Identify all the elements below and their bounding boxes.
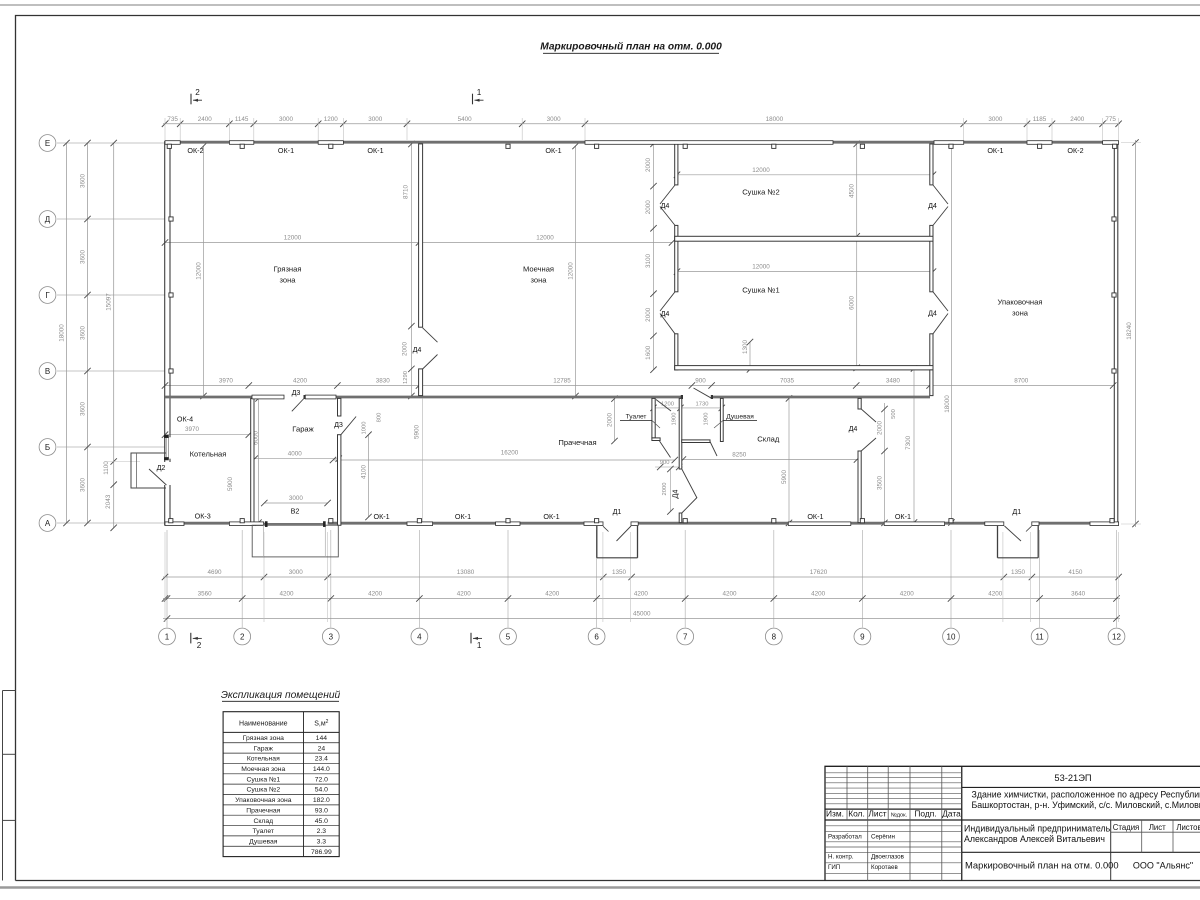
svg-text:3830: 3830 bbox=[376, 378, 391, 385]
svg-text:Д1: Д1 bbox=[613, 507, 622, 516]
svg-text:Упаковочная зона: Упаковочная зона bbox=[235, 797, 292, 804]
svg-text:5400: 5400 bbox=[458, 116, 473, 123]
svg-text:18000: 18000 bbox=[944, 395, 951, 413]
svg-text:3000: 3000 bbox=[368, 116, 383, 123]
svg-text:Д4: Д4 bbox=[661, 309, 670, 318]
svg-text:1: 1 bbox=[477, 88, 482, 97]
svg-text:ОК-1: ОК-1 bbox=[367, 146, 383, 155]
svg-text:7: 7 bbox=[683, 632, 688, 641]
svg-text:6: 6 bbox=[594, 632, 599, 641]
svg-text:Д4: Д4 bbox=[671, 490, 680, 499]
svg-text:5900: 5900 bbox=[414, 425, 421, 440]
svg-text:12000: 12000 bbox=[568, 262, 575, 280]
svg-text:Грязная: Грязная bbox=[274, 265, 302, 274]
svg-text:18240: 18240 bbox=[1126, 322, 1133, 340]
svg-text:6000: 6000 bbox=[849, 296, 856, 311]
svg-text:1300: 1300 bbox=[742, 340, 749, 355]
svg-text:4500: 4500 bbox=[849, 184, 856, 199]
svg-text:2400: 2400 bbox=[198, 116, 213, 123]
svg-text:Стадия: Стадия bbox=[1113, 823, 1140, 832]
svg-text:4: 4 bbox=[417, 632, 422, 641]
svg-text:Экспликация помещений: Экспликация помещений bbox=[221, 690, 341, 701]
svg-text:Кол.: Кол. bbox=[848, 809, 865, 819]
svg-text:ОК-4: ОК-4 bbox=[177, 415, 193, 424]
svg-text:12000: 12000 bbox=[536, 235, 554, 242]
svg-text:Гараж: Гараж bbox=[254, 745, 274, 752]
svg-text:7035: 7035 bbox=[780, 378, 795, 385]
svg-text:Е: Е bbox=[45, 139, 50, 148]
svg-text:Дата: Дата bbox=[942, 809, 961, 819]
svg-text:4200: 4200 bbox=[279, 591, 294, 598]
svg-text:ОК-1: ОК-1 bbox=[374, 512, 390, 521]
svg-text:3600: 3600 bbox=[80, 326, 87, 341]
svg-text:5900: 5900 bbox=[781, 470, 788, 485]
svg-text:12: 12 bbox=[1112, 632, 1121, 641]
svg-text:1730: 1730 bbox=[696, 402, 709, 408]
svg-text:Сушка №1: Сушка №1 bbox=[246, 776, 280, 783]
svg-text:4200: 4200 bbox=[634, 591, 649, 598]
svg-text:5900: 5900 bbox=[227, 477, 234, 492]
svg-text:735: 735 bbox=[167, 116, 178, 123]
svg-text:1185: 1185 bbox=[1033, 116, 1047, 123]
svg-text:зона: зона bbox=[530, 276, 547, 285]
svg-text:8250: 8250 bbox=[732, 452, 747, 459]
svg-text:72.0: 72.0 bbox=[315, 776, 328, 783]
svg-text:2: 2 bbox=[197, 641, 202, 650]
svg-text:93.0: 93.0 bbox=[315, 807, 328, 814]
svg-text:Д4: Д4 bbox=[661, 201, 670, 210]
svg-text:3480: 3480 bbox=[886, 378, 901, 385]
svg-text:3000: 3000 bbox=[289, 495, 304, 502]
svg-text:4150: 4150 bbox=[1068, 569, 1083, 576]
svg-text:9: 9 bbox=[860, 632, 865, 641]
svg-text:3970: 3970 bbox=[219, 378, 234, 385]
svg-text:900: 900 bbox=[695, 378, 706, 385]
svg-text:3600: 3600 bbox=[80, 174, 87, 189]
svg-text:53-21ЭП: 53-21ЭП bbox=[1054, 773, 1091, 783]
svg-text:2400: 2400 bbox=[1070, 116, 1085, 123]
svg-text:2000: 2000 bbox=[645, 200, 652, 215]
svg-text:24: 24 bbox=[318, 745, 326, 752]
svg-text:3000: 3000 bbox=[547, 116, 562, 123]
svg-text:3.3: 3.3 bbox=[317, 838, 327, 845]
svg-text:11: 11 bbox=[1035, 632, 1044, 641]
svg-text:2000: 2000 bbox=[607, 413, 614, 428]
svg-text:Моечная: Моечная bbox=[523, 265, 554, 274]
svg-text:Д: Д bbox=[45, 215, 51, 224]
svg-text:Д4: Д4 bbox=[928, 201, 937, 210]
svg-text:4200: 4200 bbox=[722, 591, 737, 598]
svg-text:4200: 4200 bbox=[368, 591, 383, 598]
svg-text:3600: 3600 bbox=[80, 478, 87, 493]
svg-text:Туалет: Туалет bbox=[253, 828, 275, 835]
svg-text:12785: 12785 bbox=[553, 378, 571, 385]
svg-text:2000: 2000 bbox=[402, 342, 409, 357]
svg-text:4200: 4200 bbox=[457, 591, 472, 598]
svg-text:8: 8 bbox=[772, 632, 777, 641]
svg-text:1100: 1100 bbox=[103, 461, 110, 475]
svg-text:ОК-3: ОК-3 bbox=[195, 512, 211, 521]
svg-text:8700: 8700 bbox=[1014, 378, 1029, 385]
svg-text:800: 800 bbox=[377, 413, 383, 423]
svg-text:3000: 3000 bbox=[988, 116, 1003, 123]
svg-text:Г: Г bbox=[45, 291, 50, 300]
svg-text:3: 3 bbox=[329, 632, 334, 641]
svg-text:ОК-2: ОК-2 bbox=[1067, 146, 1083, 155]
svg-text:1290: 1290 bbox=[403, 371, 409, 384]
svg-text:2043: 2043 bbox=[105, 494, 112, 509]
svg-text:5: 5 bbox=[506, 632, 511, 641]
svg-text:18000: 18000 bbox=[766, 116, 784, 123]
svg-text:Сушка №1: Сушка №1 bbox=[742, 286, 780, 295]
svg-text:144.0: 144.0 bbox=[313, 766, 330, 773]
svg-text:В2: В2 bbox=[291, 507, 300, 516]
svg-text:Д3: Д3 bbox=[292, 388, 301, 397]
svg-text:ОК-1: ОК-1 bbox=[455, 512, 471, 521]
svg-text:Двоеглазов: Двоеглазов bbox=[871, 853, 905, 860]
svg-text:ОК-1: ОК-1 bbox=[543, 512, 559, 521]
svg-text:144: 144 bbox=[316, 735, 328, 742]
svg-text:Листов: Листов bbox=[1176, 823, 1200, 832]
svg-text:2.3: 2.3 bbox=[317, 828, 327, 835]
svg-text:Д4: Д4 bbox=[928, 309, 937, 318]
svg-text:Маркировочный план на отм. 0.0: Маркировочный план на отм. 0.000 bbox=[965, 860, 1119, 871]
svg-text:45000: 45000 bbox=[633, 611, 651, 618]
svg-text:2000: 2000 bbox=[645, 307, 652, 322]
svg-text:54.0: 54.0 bbox=[315, 787, 328, 794]
svg-text:182.0: 182.0 bbox=[313, 797, 330, 804]
svg-text:Д1: Д1 bbox=[1012, 507, 1021, 516]
svg-text:Котельная: Котельная bbox=[190, 450, 227, 459]
svg-text:ООО "Альянс": ООО "Альянс" bbox=[1133, 861, 1193, 871]
svg-text:3600: 3600 bbox=[80, 402, 87, 417]
svg-text:3970: 3970 bbox=[185, 426, 200, 433]
svg-text:Н. контр.: Н. контр. bbox=[828, 853, 854, 860]
svg-text:Здание химчистки, расположенн: Здание химчистки, расположенное по адрес… bbox=[972, 790, 1200, 800]
svg-text:12000: 12000 bbox=[752, 167, 770, 174]
svg-text:Д4: Д4 bbox=[413, 345, 422, 354]
svg-text:15097: 15097 bbox=[106, 293, 113, 311]
svg-text:ОК-1: ОК-1 bbox=[987, 146, 1003, 155]
svg-text:ГИП: ГИП bbox=[828, 864, 840, 871]
svg-text:Александров Алексей Витальевич: Александров Алексей Витальевич bbox=[964, 834, 1105, 844]
svg-text:ОК-1: ОК-1 bbox=[545, 146, 561, 155]
svg-text:Упаковочная: Упаковочная bbox=[998, 298, 1043, 307]
svg-text:Душевая: Душевая bbox=[726, 414, 754, 421]
svg-text:Серёгин: Серёгин bbox=[871, 834, 895, 841]
svg-text:Моечная зона: Моечная зона bbox=[241, 766, 285, 773]
svg-text:Д4: Д4 bbox=[849, 424, 858, 433]
svg-text:3560: 3560 bbox=[198, 591, 213, 598]
svg-text:№док.: №док. bbox=[891, 813, 908, 819]
svg-text:900: 900 bbox=[660, 460, 670, 466]
svg-text:3500: 3500 bbox=[877, 476, 884, 491]
svg-text:4200: 4200 bbox=[811, 591, 826, 598]
svg-text:2: 2 bbox=[195, 88, 200, 97]
svg-text:Сушка №2: Сушка №2 bbox=[246, 787, 280, 794]
svg-text:Д3: Д3 bbox=[334, 420, 343, 429]
svg-text:1: 1 bbox=[165, 632, 170, 641]
svg-text:Грязная зона: Грязная зона bbox=[243, 735, 284, 742]
svg-text:1600: 1600 bbox=[645, 345, 652, 360]
svg-text:786.99: 786.99 bbox=[311, 849, 332, 856]
svg-text:Наименование: Наименование bbox=[239, 721, 288, 728]
svg-text:1900: 1900 bbox=[704, 413, 710, 426]
svg-text:Разработал: Разработал bbox=[828, 834, 862, 841]
svg-text:Маркировочный план на отм. 0.0: Маркировочный план на отм. 0.000 bbox=[540, 42, 722, 53]
svg-text:18000: 18000 bbox=[59, 324, 66, 342]
svg-text:4200: 4200 bbox=[293, 378, 308, 385]
svg-text:Подп.: Подп. bbox=[914, 809, 936, 819]
svg-text:10: 10 bbox=[947, 632, 956, 641]
svg-text:16200: 16200 bbox=[501, 450, 519, 457]
svg-text:1350: 1350 bbox=[1011, 569, 1026, 576]
svg-text:В: В bbox=[45, 367, 50, 376]
svg-text:Склад: Склад bbox=[757, 435, 780, 444]
svg-text:2: 2 bbox=[240, 632, 245, 641]
svg-text:1900: 1900 bbox=[672, 413, 678, 426]
svg-text:1350: 1350 bbox=[612, 569, 627, 576]
svg-text:500: 500 bbox=[891, 409, 897, 419]
svg-text:4200: 4200 bbox=[545, 591, 560, 598]
svg-text:3100: 3100 bbox=[645, 254, 652, 269]
svg-text:ОК-2: ОК-2 bbox=[187, 146, 203, 155]
svg-text:12000: 12000 bbox=[196, 262, 203, 280]
svg-text:12000: 12000 bbox=[284, 235, 302, 242]
svg-text:12000: 12000 bbox=[752, 264, 770, 271]
svg-text:Туалет: Туалет bbox=[626, 414, 647, 421]
svg-text:Гараж: Гараж bbox=[292, 425, 314, 434]
svg-text:4000: 4000 bbox=[288, 451, 303, 458]
svg-text:Коротаев: Коротаев bbox=[871, 864, 898, 871]
svg-text:А: А bbox=[45, 519, 51, 528]
svg-text:8710: 8710 bbox=[402, 185, 409, 200]
svg-text:Сушка №2: Сушка №2 bbox=[742, 188, 780, 197]
svg-text:Прачечная: Прачечная bbox=[246, 807, 280, 814]
svg-text:ОК-1: ОК-1 bbox=[807, 512, 823, 521]
svg-text:17620: 17620 bbox=[810, 569, 828, 576]
svg-text:2000: 2000 bbox=[877, 421, 884, 436]
svg-text:Б: Б bbox=[45, 443, 50, 452]
svg-text:Лист: Лист bbox=[1149, 823, 1166, 832]
svg-text:4100: 4100 bbox=[360, 465, 367, 480]
svg-text:4690: 4690 bbox=[207, 569, 222, 576]
svg-text:4200: 4200 bbox=[900, 591, 915, 598]
svg-text:зона: зона bbox=[1012, 309, 1029, 318]
svg-text:Лист: Лист bbox=[868, 809, 886, 819]
svg-text:3000: 3000 bbox=[279, 116, 294, 123]
svg-text:зона: зона bbox=[279, 276, 296, 285]
svg-text:ОК-1: ОК-1 bbox=[895, 512, 911, 521]
svg-text:Д2: Д2 bbox=[157, 463, 166, 472]
svg-text:3600: 3600 bbox=[80, 250, 87, 265]
svg-text:2000: 2000 bbox=[662, 483, 668, 496]
svg-text:1145: 1145 bbox=[235, 116, 249, 123]
svg-text:Башкортостан, р-н. Уфимский, с: Башкортостан, р-н. Уфимский, с/с. Миловс… bbox=[972, 800, 1200, 810]
svg-text:1200: 1200 bbox=[324, 116, 339, 123]
svg-text:Индивидуальный предприниматель: Индивидуальный предприниматель bbox=[964, 823, 1111, 833]
svg-text:Душевая: Душевая bbox=[249, 838, 278, 845]
svg-text:7300: 7300 bbox=[905, 435, 912, 450]
svg-text:1000: 1000 bbox=[362, 422, 368, 435]
svg-text:ОК-1: ОК-1 bbox=[278, 146, 294, 155]
svg-text:2000: 2000 bbox=[645, 158, 652, 173]
svg-text:3640: 3640 bbox=[1071, 591, 1086, 598]
svg-text:Котельная: Котельная bbox=[247, 756, 280, 763]
svg-text:3000: 3000 bbox=[289, 569, 304, 576]
svg-text:775: 775 bbox=[1105, 116, 1116, 123]
svg-text:4200: 4200 bbox=[988, 591, 1003, 598]
svg-text:23.4: 23.4 bbox=[315, 756, 328, 763]
svg-text:1: 1 bbox=[477, 641, 482, 650]
svg-text:Склад: Склад bbox=[253, 818, 273, 825]
svg-text:Прачечная: Прачечная bbox=[558, 438, 596, 447]
svg-text:45.0: 45.0 bbox=[315, 818, 328, 825]
svg-text:Изм.: Изм. bbox=[826, 809, 844, 819]
svg-text:13080: 13080 bbox=[457, 569, 475, 576]
